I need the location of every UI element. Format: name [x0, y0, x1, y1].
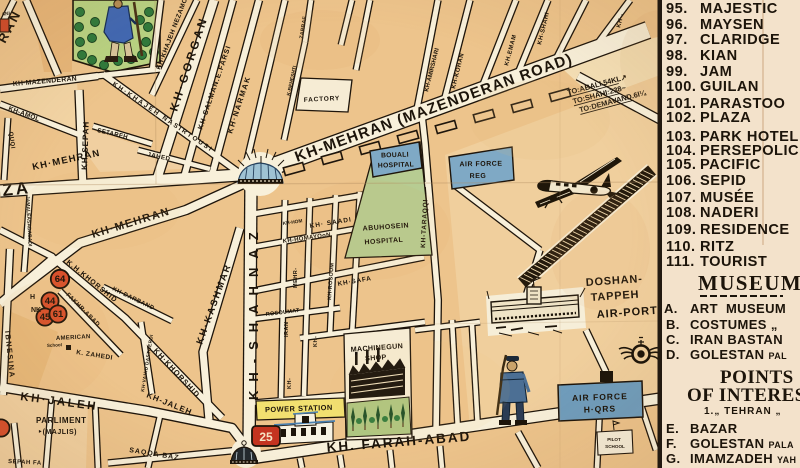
svg-text:108.: 108.	[666, 205, 696, 221]
svg-text:RESIDENCE: RESIDENCE	[700, 222, 790, 238]
svg-text:OF INTERES: OF INTERES	[687, 385, 800, 406]
svg-text:98.: 98.	[666, 48, 688, 64]
svg-text:PACIFIC: PACIFIC	[700, 157, 761, 173]
svg-text:B.: B.	[666, 317, 680, 332]
svg-text:CLARIDGE: CLARIDGE	[700, 32, 780, 48]
svg-text:109.: 109.	[666, 222, 696, 238]
svg-text:E.: E.	[666, 421, 679, 436]
svg-text:99.: 99.	[666, 64, 688, 80]
svg-text:102.: 102.	[666, 110, 696, 126]
svg-text:111.: 111.	[666, 254, 695, 270]
svg-text:ART MUSEUM: ART MUSEUM	[690, 301, 786, 316]
svg-text:100.: 100.	[666, 79, 696, 95]
svg-text:MAJESTIC: MAJESTIC	[700, 1, 778, 17]
svg-text:105.: 105.	[666, 157, 696, 173]
svg-text:C.: C.	[666, 332, 680, 347]
svg-text:MAYSEN: MAYSEN	[700, 17, 764, 33]
svg-text:95.: 95.	[666, 1, 688, 17]
svg-text:MUSÉE: MUSÉE	[700, 189, 754, 206]
svg-text:TOURIST: TOURIST	[700, 254, 767, 270]
svg-text:RITZ: RITZ	[700, 239, 734, 255]
svg-text:96.: 96.	[666, 17, 688, 33]
svg-text:110.: 110.	[666, 239, 696, 255]
svg-text:F.: F.	[666, 436, 677, 451]
svg-text:BAZAR: BAZAR	[690, 421, 738, 436]
svg-text:A.: A.	[664, 301, 678, 316]
svg-text:1.„ TEHRAN „: 1.„ TEHRAN „	[704, 406, 782, 417]
svg-text:G.: G.	[666, 451, 681, 466]
svg-text:97.: 97.	[666, 32, 688, 48]
svg-text:COSTUMES „: COSTUMES „	[690, 317, 778, 332]
svg-text:D.: D.	[666, 347, 680, 362]
svg-text:MUSEUM: MUSEUM	[698, 271, 800, 295]
svg-text:JAM: JAM	[700, 64, 732, 80]
svg-text:GUILAN: GUILAN	[700, 79, 759, 95]
svg-text:KIAN: KIAN	[700, 48, 738, 64]
svg-text:106.: 106.	[666, 173, 696, 189]
svg-text:IRAN BASTAN: IRAN BASTAN	[690, 332, 783, 347]
svg-text:SEPID: SEPID	[700, 173, 746, 189]
svg-text:107.: 107.	[666, 190, 696, 206]
svg-text:PLAZA: PLAZA	[700, 110, 751, 126]
svg-text:NADERI: NADERI	[700, 205, 759, 221]
